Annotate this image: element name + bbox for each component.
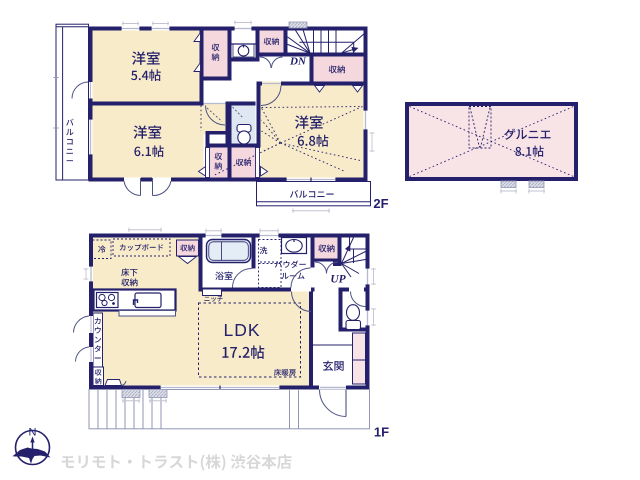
svg-text:1F: 1F: [374, 425, 389, 440]
svg-text:2F: 2F: [373, 196, 388, 211]
svg-text:DN: DN: [289, 56, 307, 68]
svg-text:UP: UP: [330, 274, 346, 286]
svg-text:LDK: LDK: [223, 320, 260, 340]
